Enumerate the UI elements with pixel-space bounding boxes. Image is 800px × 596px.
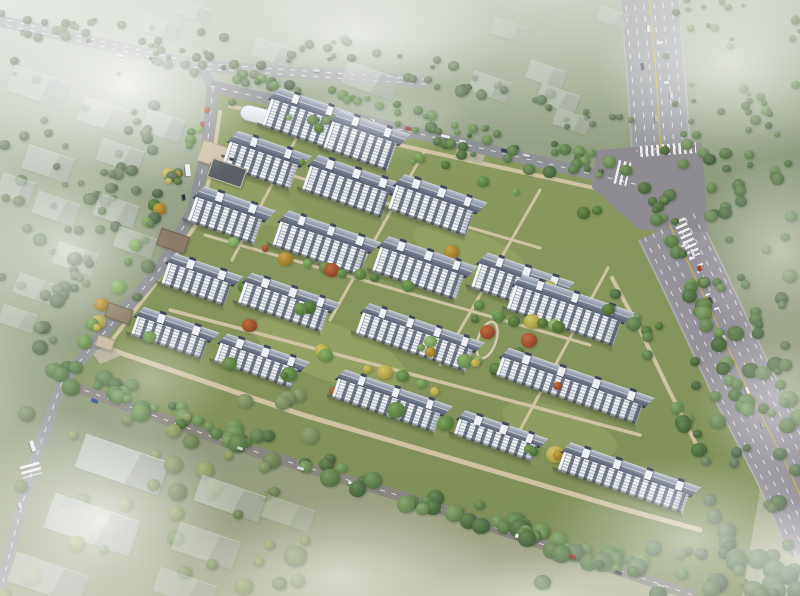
tree <box>228 99 236 107</box>
tree <box>375 102 384 110</box>
tree <box>162 60 172 69</box>
tree <box>448 61 459 71</box>
tree <box>397 496 415 513</box>
tree <box>747 162 753 168</box>
tree <box>433 56 442 64</box>
tree <box>275 395 291 409</box>
tree <box>110 280 125 294</box>
tree <box>129 239 142 251</box>
tree <box>353 97 362 105</box>
tree <box>82 280 89 287</box>
tree <box>603 156 616 168</box>
tree <box>327 57 332 61</box>
tree <box>672 9 680 16</box>
tree <box>290 574 305 588</box>
tree <box>774 368 782 375</box>
tree <box>64 226 72 233</box>
tree <box>299 45 306 51</box>
tree <box>0 589 11 596</box>
tree <box>69 361 83 374</box>
tree <box>424 336 437 348</box>
tree <box>61 32 71 41</box>
tree <box>168 506 184 521</box>
tree <box>284 546 306 566</box>
tree <box>767 503 778 513</box>
car <box>312 68 319 72</box>
tree <box>33 322 45 333</box>
tree <box>472 518 489 534</box>
tree <box>782 539 795 551</box>
tree <box>413 106 423 115</box>
tree <box>396 370 409 382</box>
tree <box>23 16 32 24</box>
tree <box>709 391 721 402</box>
tree <box>785 211 796 222</box>
tree <box>343 38 352 46</box>
tree <box>468 124 478 133</box>
tree <box>752 328 764 339</box>
tree <box>767 588 779 596</box>
tree <box>152 189 162 198</box>
tree <box>691 443 707 457</box>
tree <box>33 233 47 246</box>
tree <box>142 134 153 144</box>
tree <box>703 154 715 165</box>
tree <box>13 196 24 206</box>
tree <box>410 159 416 164</box>
tree <box>168 483 187 501</box>
tree <box>93 381 102 389</box>
tree <box>779 397 790 407</box>
tree <box>523 164 535 175</box>
tree <box>118 498 133 511</box>
tree <box>85 260 94 268</box>
tree <box>50 294 65 308</box>
tree <box>740 403 754 416</box>
tree <box>411 127 418 134</box>
tree <box>706 183 717 193</box>
tree <box>628 117 634 123</box>
tree <box>328 86 337 94</box>
tree <box>503 154 512 162</box>
tree <box>14 480 28 493</box>
tree <box>780 233 789 241</box>
tree <box>186 142 193 149</box>
lane-marking <box>658 41 663 43</box>
tree <box>471 315 479 323</box>
tree <box>147 479 160 491</box>
tree <box>645 540 662 556</box>
tree <box>670 402 683 414</box>
tree <box>343 96 352 104</box>
tree <box>95 225 105 234</box>
tree <box>537 318 548 328</box>
tree <box>508 316 520 327</box>
tree <box>671 218 679 225</box>
tree <box>0 140 10 150</box>
car <box>117 53 123 57</box>
tree <box>198 61 207 69</box>
tree <box>323 44 331 52</box>
tree <box>33 33 43 42</box>
tree <box>627 566 639 577</box>
tree <box>474 300 484 309</box>
tree <box>62 379 80 395</box>
car <box>646 24 649 31</box>
tree <box>687 25 694 31</box>
tree <box>100 169 108 176</box>
tree <box>771 173 784 185</box>
tree <box>620 165 632 176</box>
tree <box>672 101 678 107</box>
tree <box>719 148 731 159</box>
tree <box>318 349 333 362</box>
tree <box>709 414 725 429</box>
tree <box>477 176 489 187</box>
tree <box>62 143 68 148</box>
tree <box>791 16 800 25</box>
car <box>669 91 672 98</box>
tree <box>131 405 149 422</box>
tree <box>726 43 733 50</box>
tree <box>125 165 138 177</box>
tree <box>300 536 309 545</box>
tree <box>123 395 131 402</box>
tree <box>221 65 226 70</box>
tree <box>174 178 181 185</box>
tree <box>141 260 155 272</box>
car <box>654 114 657 121</box>
tree <box>219 33 229 42</box>
tree <box>154 58 162 66</box>
tree <box>551 141 558 147</box>
tree <box>259 462 270 473</box>
tree <box>733 565 745 576</box>
tree <box>470 152 476 157</box>
tree <box>262 430 275 442</box>
tree <box>370 274 379 282</box>
tree <box>434 84 440 90</box>
tree <box>725 236 733 243</box>
tree <box>256 61 266 70</box>
tree <box>393 101 401 108</box>
tree <box>731 447 743 458</box>
tree <box>779 418 796 433</box>
tree <box>704 210 717 222</box>
tree <box>320 469 339 487</box>
tree <box>716 362 730 375</box>
tree <box>797 29 800 33</box>
tree <box>68 430 78 440</box>
tree <box>778 301 786 308</box>
tree <box>78 180 84 185</box>
tree <box>372 49 381 57</box>
tree <box>782 269 797 283</box>
tree <box>681 139 693 150</box>
tree <box>602 304 615 316</box>
tree <box>741 280 751 289</box>
tree <box>278 252 293 266</box>
tree <box>529 447 538 456</box>
tree <box>791 81 800 90</box>
tree <box>32 340 48 355</box>
tree <box>24 31 32 38</box>
tree <box>0 273 6 281</box>
tree <box>305 40 314 48</box>
tree <box>237 394 252 408</box>
tree <box>364 472 382 489</box>
tree <box>286 115 291 120</box>
aerial-site-rendering <box>0 0 800 596</box>
tree <box>425 347 436 357</box>
tree <box>702 581 720 596</box>
tree <box>183 434 198 448</box>
tree <box>284 80 295 90</box>
tree <box>589 121 595 127</box>
tree <box>451 122 458 129</box>
tree <box>124 126 133 135</box>
tree <box>789 35 796 42</box>
tree <box>67 252 82 266</box>
tree <box>787 581 800 596</box>
tree <box>552 545 571 562</box>
tree <box>77 335 92 349</box>
tree <box>437 417 453 432</box>
tree <box>99 545 109 554</box>
tree <box>147 220 155 228</box>
tree <box>147 145 157 154</box>
tree <box>74 226 83 235</box>
tree <box>761 245 771 254</box>
tree <box>430 65 435 69</box>
tree <box>727 326 744 341</box>
tree <box>457 354 472 368</box>
tree <box>744 150 754 159</box>
tree <box>131 109 137 114</box>
tree <box>722 165 730 173</box>
tree <box>746 91 751 96</box>
tree <box>692 131 701 139</box>
tree <box>699 319 713 332</box>
tree <box>253 557 264 567</box>
tree <box>650 214 663 226</box>
tree <box>482 135 493 145</box>
tree <box>286 58 291 63</box>
tree <box>138 38 145 45</box>
tree <box>224 451 233 460</box>
tree <box>610 289 620 298</box>
tree <box>180 60 190 69</box>
tree <box>512 189 518 195</box>
tree <box>493 312 504 322</box>
tree <box>680 131 686 137</box>
tree <box>476 90 487 100</box>
tree <box>331 40 336 44</box>
tree <box>179 48 184 53</box>
tree <box>301 427 319 443</box>
tree <box>264 540 275 550</box>
tree <box>592 206 602 215</box>
tree <box>773 448 787 461</box>
tree <box>394 109 401 116</box>
tree <box>0 10 5 16</box>
tree <box>745 109 751 115</box>
tree <box>493 130 501 137</box>
tree <box>594 560 604 569</box>
tree <box>229 60 238 69</box>
tree <box>701 457 711 466</box>
tree <box>446 139 456 148</box>
tree <box>701 5 706 10</box>
tree <box>741 4 745 8</box>
tree <box>559 144 571 155</box>
tree <box>416 503 428 514</box>
tree <box>294 303 307 315</box>
tree <box>729 458 739 467</box>
tree <box>663 53 669 59</box>
tree <box>416 379 426 388</box>
tree <box>303 259 312 267</box>
tree <box>228 237 239 247</box>
tree <box>83 193 96 205</box>
tree <box>649 586 667 596</box>
tree <box>789 464 800 477</box>
tree <box>500 86 508 94</box>
tree <box>700 278 709 286</box>
tree <box>132 293 141 302</box>
tree <box>105 183 116 193</box>
tree <box>2 194 10 201</box>
tree <box>441 161 449 168</box>
tree <box>642 350 653 360</box>
tree <box>314 123 324 132</box>
tree <box>98 207 106 214</box>
tree <box>456 150 467 161</box>
tree <box>272 577 287 591</box>
car <box>640 62 643 69</box>
tree <box>206 559 218 570</box>
tree <box>430 387 439 396</box>
lane-marking <box>664 81 669 83</box>
tree <box>49 336 58 344</box>
tree <box>678 250 686 258</box>
tree <box>716 284 725 293</box>
tree <box>133 118 141 125</box>
tree <box>688 82 694 88</box>
tree <box>596 172 602 178</box>
tree <box>455 87 465 97</box>
tree <box>81 29 89 36</box>
tree <box>534 575 550 590</box>
tree <box>675 568 688 580</box>
tree <box>19 131 29 141</box>
tree <box>87 19 95 26</box>
tree <box>774 131 780 137</box>
tree <box>677 159 688 169</box>
tree <box>734 185 746 196</box>
tree <box>543 166 556 178</box>
tree <box>108 170 116 177</box>
tree <box>755 366 771 381</box>
tree <box>467 133 472 138</box>
tree <box>205 52 214 61</box>
tree <box>616 114 622 120</box>
tree <box>695 548 708 560</box>
tree <box>710 24 718 32</box>
tree <box>395 121 401 127</box>
tree <box>337 269 347 278</box>
tree <box>775 380 786 390</box>
tree <box>577 207 590 219</box>
tree <box>234 578 252 595</box>
tree <box>280 372 288 379</box>
tree <box>262 245 269 251</box>
tree <box>41 19 48 25</box>
tree <box>409 75 417 82</box>
tree <box>761 100 767 106</box>
tree <box>73 24 79 30</box>
tree <box>693 430 702 438</box>
tree <box>752 588 768 596</box>
tree <box>584 166 591 173</box>
